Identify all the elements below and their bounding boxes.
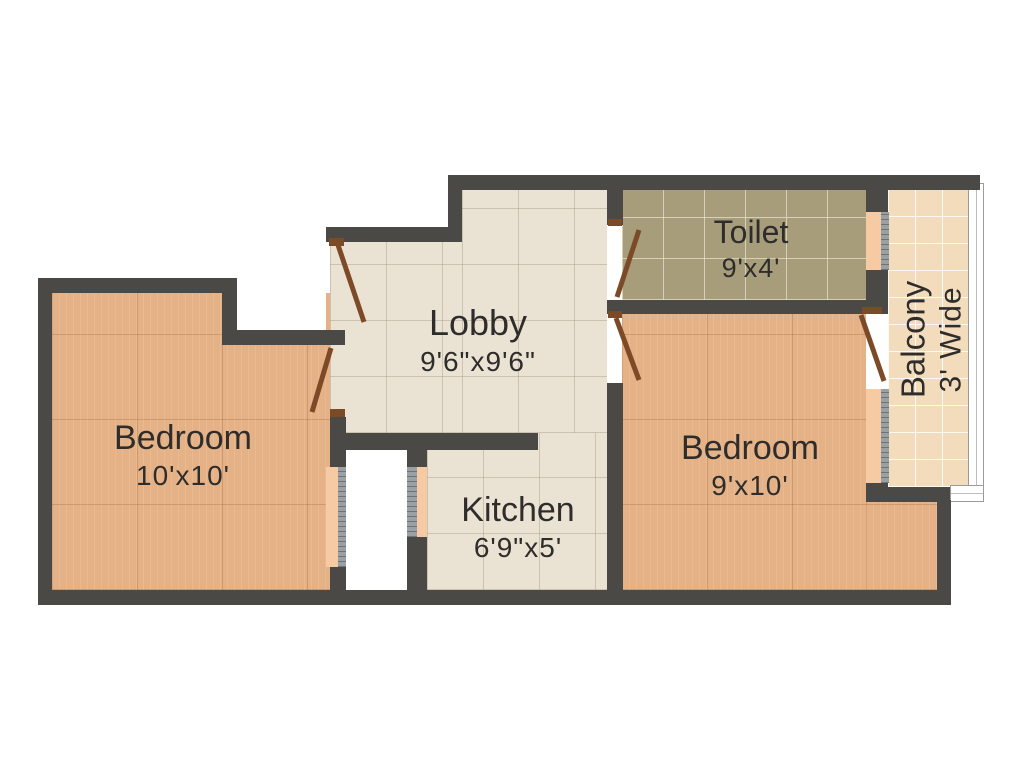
- room-name: Balcony: [894, 239, 934, 439]
- floor-plan: Bedroom 10'x10' Lobby 9'6"x9'6" Kitchen …: [0, 0, 1024, 768]
- room-label-balcony: Balcony 3' Wide: [894, 239, 971, 439]
- room-dimensions: 6'9"x5': [418, 531, 618, 565]
- room-label-bedroom-right: Bedroom 9'x10': [630, 428, 870, 504]
- door-swing-toilet: [617, 230, 639, 297]
- door-swings: [0, 0, 1024, 768]
- door-swing-bedroom-left: [312, 348, 331, 412]
- door-swing-bedroom-right: [616, 318, 639, 380]
- room-name: Bedroom: [63, 418, 303, 459]
- room-name: Lobby: [378, 301, 578, 345]
- room-name: Kitchen: [418, 490, 618, 531]
- room-label-kitchen: Kitchen 6'9"x5': [418, 490, 618, 566]
- room-label-lobby: Lobby 9'6"x9'6": [378, 301, 578, 379]
- room-name: Bedroom: [630, 428, 870, 469]
- room-dimensions: 3' Wide: [934, 239, 971, 439]
- room-label-toilet: Toilet 9'x4': [651, 213, 851, 285]
- room-name: Toilet: [651, 213, 851, 252]
- door-swing-entrance: [338, 245, 364, 322]
- room-label-bedroom-left: Bedroom 10'x10': [63, 418, 303, 494]
- room-dimensions: 10'x10': [63, 459, 303, 493]
- door-swing-balcony: [861, 315, 884, 381]
- room-dimensions: 9'6"x9'6": [378, 345, 578, 379]
- room-dimensions: 9'x4': [651, 252, 851, 285]
- room-dimensions: 9'x10': [630, 469, 870, 503]
